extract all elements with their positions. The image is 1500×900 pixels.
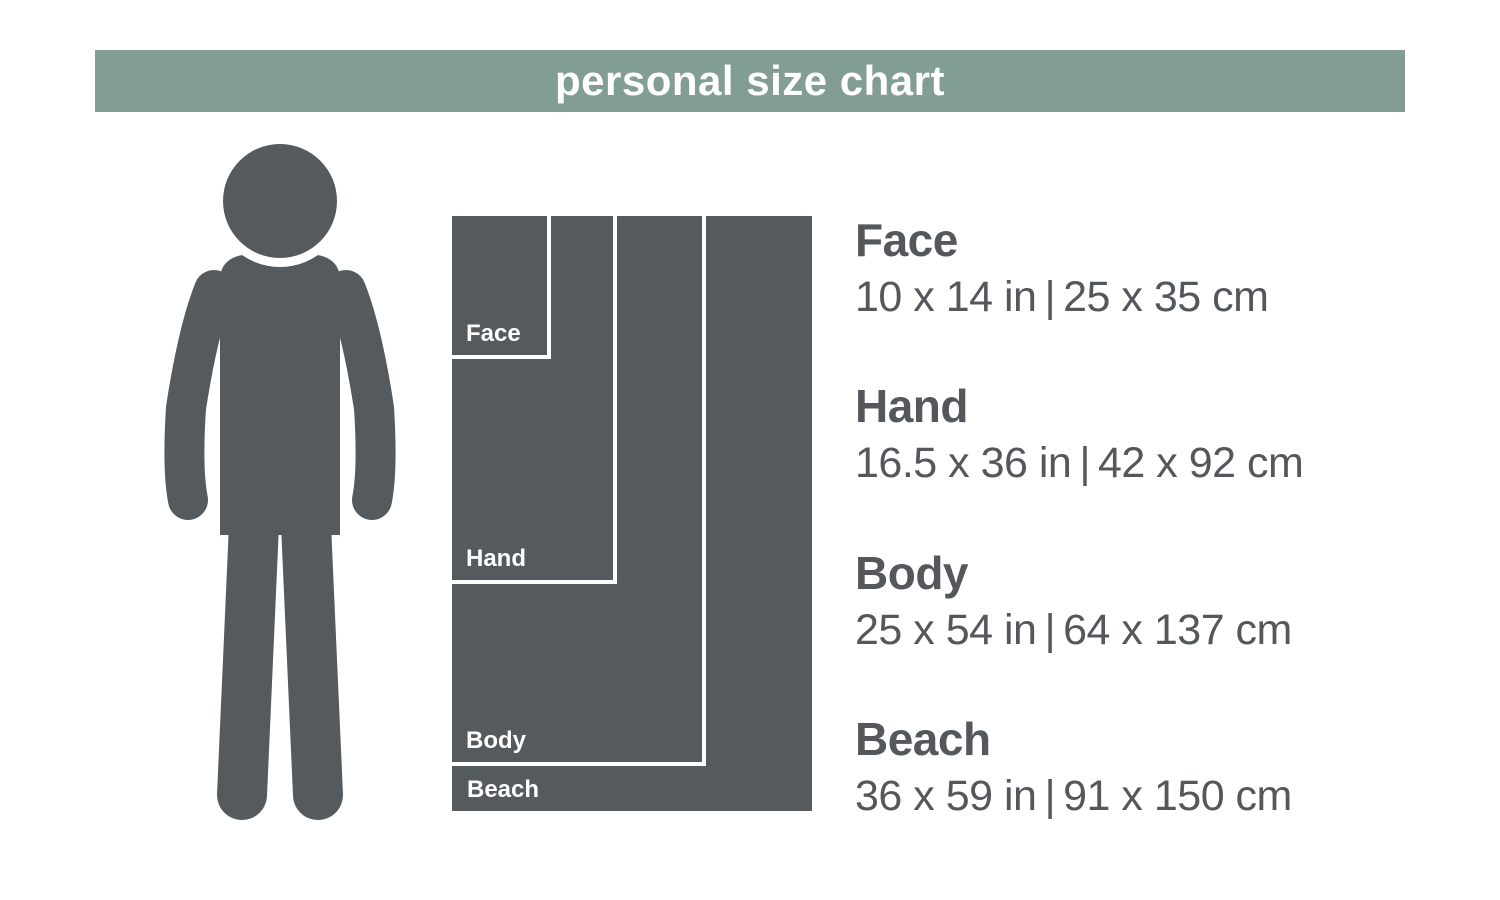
size-box-body-label: Body <box>466 729 526 753</box>
legend-beach-cm: 91 x 150 cm <box>1063 772 1292 820</box>
legend-hand-title: Hand <box>855 380 1303 432</box>
size-box-face-label: Face <box>466 322 521 346</box>
legend-body-dimensions: 25 x 54 in|64 x 137 cm <box>855 605 1292 655</box>
legend-body-inches: 25 x 54 in <box>855 606 1036 654</box>
size-box-face: Face <box>452 216 551 359</box>
separator-bar: | <box>1036 772 1063 820</box>
legend-beach-dimensions: 36 x 59 in|91 x 150 cm <box>855 771 1292 821</box>
size-comparison-boxes: Body Hand Face Beach <box>452 216 812 811</box>
separator-bar: | <box>1036 606 1063 654</box>
legend-item-face: Face 10 x 14 in|25 x 35 cm <box>855 214 1268 322</box>
legend-face-cm: 25 x 35 cm <box>1063 273 1268 321</box>
legend-face-title: Face <box>855 214 1268 266</box>
legend-item-hand: Hand 16.5 x 36 in|42 x 92 cm <box>855 380 1303 488</box>
page-title: personal size chart <box>555 57 945 105</box>
size-chart-infographic: personal size chart Body Hand Face Beach <box>0 0 1500 900</box>
legend-item-beach: Beach 36 x 59 in|91 x 150 cm <box>855 713 1292 821</box>
separator-bar: | <box>1036 273 1063 321</box>
legend-beach-inches: 36 x 59 in <box>855 772 1036 820</box>
legend-body-cm: 64 x 137 cm <box>1063 606 1292 654</box>
size-box-beach-label: Beach <box>467 778 539 802</box>
size-box-hand-label: Hand <box>466 547 526 571</box>
legend-hand-dimensions: 16.5 x 36 in|42 x 92 cm <box>855 438 1303 488</box>
person-silhouette-icon <box>158 140 402 830</box>
legend-beach-title: Beach <box>855 713 1292 765</box>
legend-hand-cm: 42 x 92 cm <box>1098 439 1303 487</box>
separator-bar: | <box>1071 439 1098 487</box>
legend-item-body: Body 25 x 54 in|64 x 137 cm <box>855 547 1292 655</box>
legend-face-inches: 10 x 14 in <box>855 273 1036 321</box>
legend-face-dimensions: 10 x 14 in|25 x 35 cm <box>855 272 1268 322</box>
legend-body-title: Body <box>855 547 1292 599</box>
legend-hand-inches: 16.5 x 36 in <box>855 439 1071 487</box>
title-banner: personal size chart <box>95 50 1405 112</box>
